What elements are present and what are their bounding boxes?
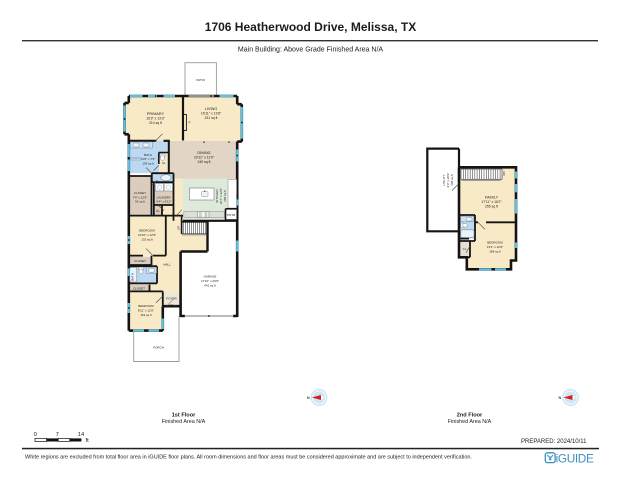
- svg-text:ft: ft: [86, 438, 90, 444]
- svg-text:16'11" x 13'8": 16'11" x 13'8": [201, 112, 222, 116]
- svg-text:1706 Heatherwood Drive, Meliss: 1706 Heatherwood Drive, Melissa, TX: [205, 20, 416, 34]
- svg-text:PNTR: PNTR: [227, 213, 236, 217]
- svg-text:6'4" x 6'11": 6'4" x 6'11": [157, 200, 172, 204]
- svg-text:214 sq ft: 214 sq ft: [149, 121, 162, 125]
- svg-text:PREPARED: 2024/10/11: PREPARED: 2024/10/11: [521, 439, 587, 445]
- svg-text:UP: UP: [176, 226, 180, 230]
- svg-text:441 sq ft: 441 sq ft: [204, 284, 216, 288]
- svg-text:GARAGE: GARAGE: [204, 274, 217, 278]
- svg-text:HALL: HALL: [163, 263, 171, 267]
- svg-text:91 sq ft: 91 sq ft: [135, 200, 145, 204]
- svg-text:14: 14: [78, 432, 85, 438]
- svg-text:CLOSET: CLOSET: [133, 287, 145, 291]
- svg-text:BATH: BATH: [130, 273, 134, 281]
- svg-text:White regions are excluded fro: White regions are excluded from total fl…: [25, 454, 472, 460]
- svg-text:255 sq ft: 255 sq ft: [485, 205, 498, 209]
- svg-text:1st Floor: 1st Floor: [172, 413, 196, 419]
- svg-text:CL: CL: [156, 209, 160, 213]
- svg-text:FAMILY: FAMILY: [485, 195, 499, 199]
- svg-text:119 sq ft: 119 sq ft: [140, 313, 151, 317]
- svg-text:17'11" x 16'2": 17'11" x 16'2": [481, 200, 502, 204]
- svg-text:LIVING: LIVING: [205, 107, 217, 111]
- svg-text:20'11" x 11'9": 20'11" x 11'9": [194, 156, 215, 160]
- svg-text:132 sq ft: 132 sq ft: [141, 238, 153, 242]
- svg-text:10'10" x 12'9": 10'10" x 12'9": [138, 233, 156, 237]
- svg-text:iGUIDE: iGUIDE: [556, 452, 594, 466]
- svg-text:108 sq ft: 108 sq ft: [450, 174, 454, 186]
- svg-text:CL: CL: [463, 247, 467, 251]
- svg-text:7: 7: [56, 432, 59, 438]
- svg-text:Finished Area N/A: Finished Area N/A: [448, 419, 492, 425]
- svg-text:CL: CL: [162, 161, 166, 165]
- svg-text:PORCH: PORCH: [153, 346, 164, 350]
- svg-text:136 sq ft: 136 sq ft: [142, 161, 154, 165]
- svg-text:BEDROOM: BEDROOM: [138, 304, 154, 308]
- svg-text:205 sq ft: 205 sq ft: [223, 190, 227, 202]
- svg-text:DN: DN: [502, 171, 506, 175]
- svg-text:Main Building: Above Grade Fin: Main Building: Above Grade Finished Area…: [238, 47, 383, 54]
- svg-text:2nd Floor: 2nd Floor: [457, 413, 483, 419]
- svg-text:DINING: DINING: [197, 151, 210, 155]
- svg-text:N: N: [307, 396, 310, 400]
- svg-text:240 sq ft: 240 sq ft: [197, 160, 210, 164]
- svg-text:13'1" x 12'6": 13'1" x 12'6": [487, 245, 503, 249]
- svg-text:17'10" x 29'6": 17'10" x 29'6": [201, 279, 219, 283]
- svg-text:BEDROOM: BEDROOM: [487, 241, 503, 245]
- svg-text:0: 0: [34, 432, 37, 438]
- svg-text:FOYER: FOYER: [166, 297, 177, 301]
- svg-text:231 sq ft: 231 sq ft: [204, 116, 217, 120]
- svg-text:CLOSET: CLOSET: [134, 259, 146, 263]
- svg-text:BEDROOM: BEDROOM: [139, 229, 155, 233]
- svg-text:186 sq ft: 186 sq ft: [489, 250, 501, 254]
- svg-text:N: N: [558, 396, 561, 400]
- svg-text:PRIMARY: PRIMARY: [147, 112, 165, 116]
- svg-text:8'11" x 12'0": 8'11" x 12'0": [138, 309, 154, 313]
- svg-text:16'3" x 13'3": 16'3" x 13'3": [146, 117, 165, 121]
- svg-text:P: P: [188, 121, 190, 125]
- svg-text:PATIO: PATIO: [196, 78, 205, 82]
- svg-text:Finished Area N/A: Finished Area N/A: [162, 419, 206, 425]
